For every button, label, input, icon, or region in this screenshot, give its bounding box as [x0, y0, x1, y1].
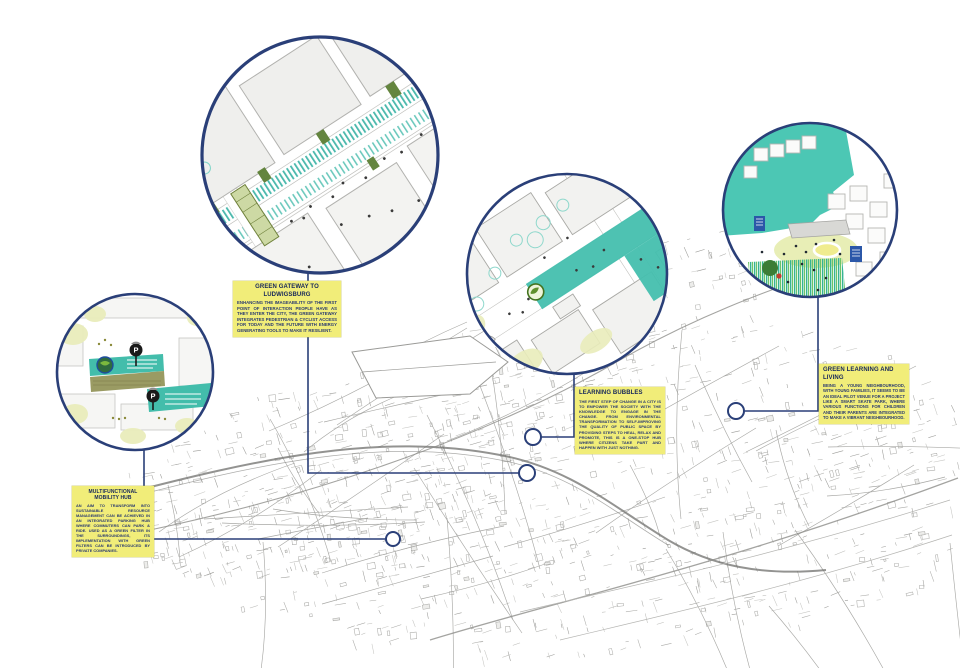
map-node-green-gateway [519, 465, 535, 481]
callout-title: LEARNING BUBBLES [579, 390, 661, 398]
connector-green-living [736, 296, 818, 411]
svg-text:P: P [133, 345, 138, 354]
callout-green-gateway: GREEN GATEWAY TO LUDWIGSBURG ENHANCING T… [233, 281, 341, 337]
callout-body: BEING A YOUNG NEIGHBOURHOOD, WITH YOUNG … [823, 383, 905, 420]
callout-mobility-hub: MULTIFUNCTIONAL MOBILITY HUB AN AIM TO T… [72, 486, 154, 557]
callout-learning-bubbles: LEARNING BUBBLES THE FIRST STEP OF CHANG… [575, 387, 665, 454]
callout-title: GREEN LEARNING AND LIVING [823, 367, 905, 382]
callout-title: MULTIFUNCTIONAL MOBILITY HUB [76, 489, 150, 502]
map-node-learning-bubbles [525, 429, 541, 445]
masterplan-poster: { "page": { "background": "#ffffff" }, "… [0, 0, 960, 668]
callout-body: AN AIM TO TRANSFORM INTO SUSTAINABLE RES… [76, 503, 150, 554]
callout-body: THE FIRST STEP OF CHANGE IN A CITY IS TO… [579, 399, 661, 451]
map-node-green-living [728, 403, 744, 419]
detail-view-mobility-hub: P P [57, 294, 215, 450]
detail-view-green-living [720, 120, 899, 300]
masterplan-map: P P [0, 0, 960, 668]
connector-mobility-hub [144, 449, 393, 539]
svg-text:P: P [150, 391, 155, 400]
callout-title: GREEN GATEWAY TO LUDWIGSBURG [237, 284, 337, 299]
callout-green-living: GREEN LEARNING AND LIVING BEING A YOUNG … [819, 364, 909, 424]
map-node-mobility-hub [386, 532, 400, 546]
hub-logo-icon [97, 357, 113, 373]
callout-body: ENHANCING THE IMAGEABILITY OF THE FIRST … [237, 300, 337, 333]
